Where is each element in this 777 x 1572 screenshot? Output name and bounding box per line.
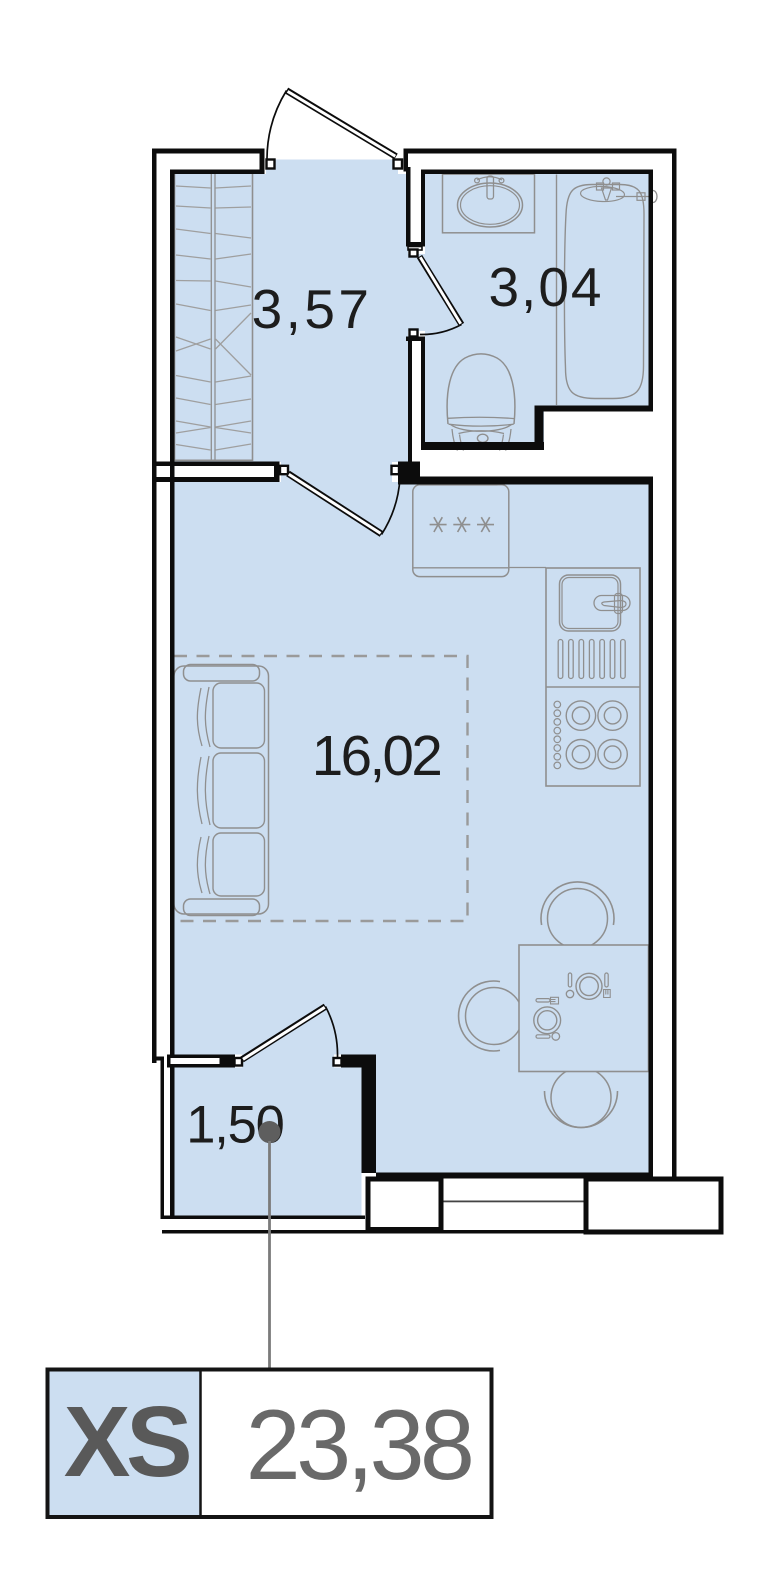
svg-text:3,57: 3,57 bbox=[252, 278, 373, 340]
svg-text:XS: XS bbox=[64, 1386, 189, 1498]
svg-text:3,04: 3,04 bbox=[488, 256, 603, 318]
svg-text:16,02: 16,02 bbox=[312, 724, 441, 787]
svg-text:23,38: 23,38 bbox=[246, 1389, 471, 1500]
